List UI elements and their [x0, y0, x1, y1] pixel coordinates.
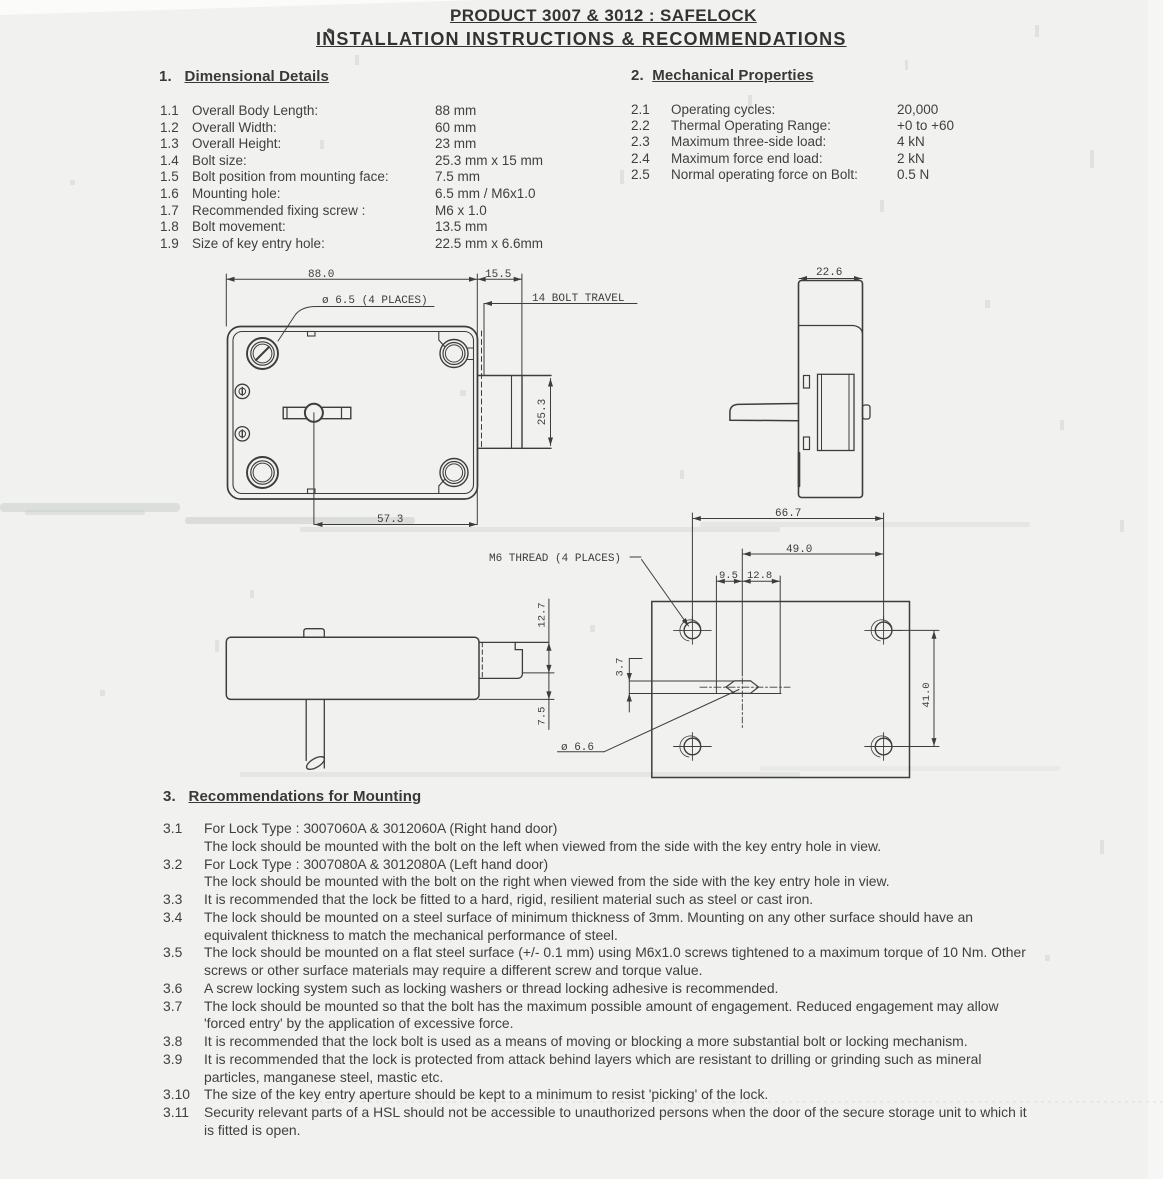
- svg-text:ø 6.5 (4 PLACES): ø 6.5 (4 PLACES): [322, 295, 428, 307]
- svg-text:3.7: 3.7: [615, 658, 627, 677]
- svg-text:22.6: 22.6: [816, 267, 842, 279]
- svg-text:M6 THREAD (4 PLACES): M6 THREAD (4 PLACES): [489, 553, 621, 565]
- svg-text:12.8: 12.8: [747, 570, 772, 582]
- svg-text:12.7: 12.7: [537, 602, 549, 627]
- svg-text:25.3: 25.3: [537, 399, 549, 425]
- svg-text:41.0: 41.0: [921, 682, 933, 707]
- svg-text:9.5: 9.5: [719, 570, 738, 582]
- svg-text:7.5: 7.5: [537, 707, 549, 726]
